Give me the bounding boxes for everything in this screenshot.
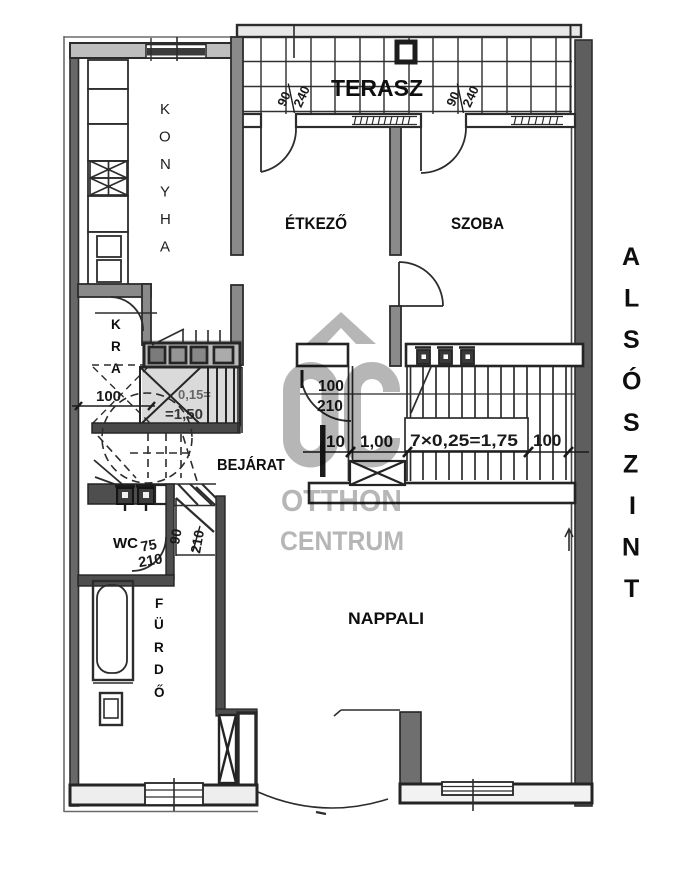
svg-text:7×0,25=1,75: 7×0,25=1,75 bbox=[410, 431, 518, 450]
svg-text:CENTRUM: CENTRUM bbox=[280, 526, 404, 556]
svg-text:NAPPALI: NAPPALI bbox=[348, 609, 424, 628]
svg-text:=1,50: =1,50 bbox=[165, 406, 203, 423]
svg-text:BEJÁRAT: BEJÁRAT bbox=[217, 457, 285, 474]
svg-text:SZOBA: SZOBA bbox=[451, 215, 504, 233]
svg-text:0,15=: 0,15= bbox=[178, 387, 211, 402]
svg-text:ÉTKEZŐ: ÉTKEZŐ bbox=[285, 214, 347, 233]
svg-text:KRA: KRA bbox=[111, 317, 121, 376]
svg-text:OTTHON: OTTHON bbox=[281, 483, 402, 518]
svg-text:100: 100 bbox=[533, 431, 561, 450]
svg-text:ALSÓSZINT: ALSÓSZINT bbox=[622, 243, 641, 603]
svg-text:WC: WC bbox=[113, 535, 138, 552]
svg-text:100: 100 bbox=[96, 388, 121, 405]
svg-text:TERASZ: TERASZ bbox=[331, 75, 423, 101]
svg-text:90: 90 bbox=[166, 527, 184, 545]
